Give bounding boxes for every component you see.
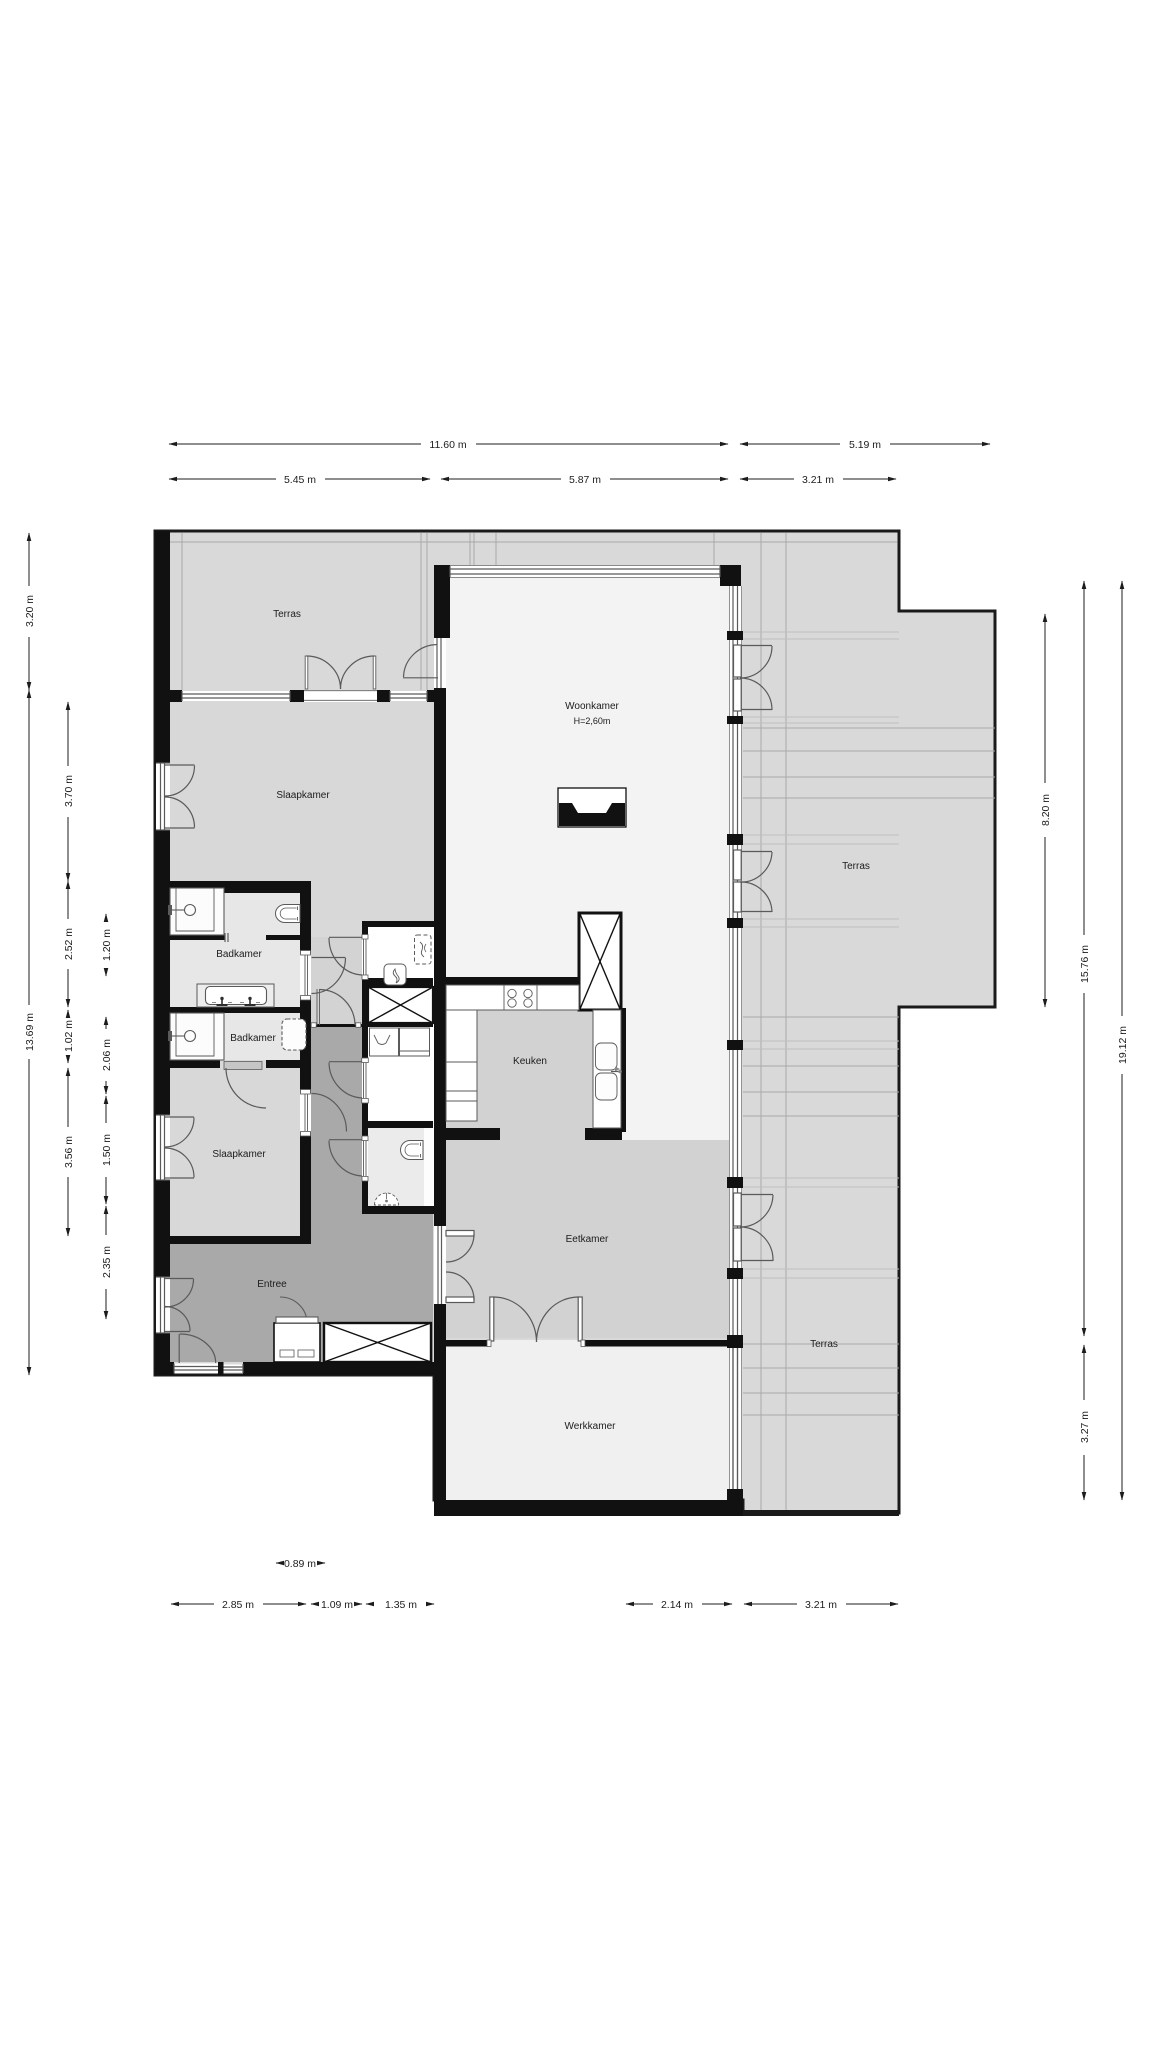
svg-text:3.20 m: 3.20 m <box>24 595 36 627</box>
svg-text:Badkamer: Badkamer <box>230 1033 276 1044</box>
svg-text:3.56 m: 3.56 m <box>63 1136 75 1168</box>
svg-text:1.50 m: 1.50 m <box>101 1134 113 1166</box>
svg-text:Slaapkamer: Slaapkamer <box>212 1149 266 1160</box>
svg-text:H=2,60m: H=2,60m <box>574 716 611 726</box>
svg-text:2.85 m: 2.85 m <box>222 1599 254 1611</box>
svg-text:19.12 m: 19.12 m <box>1117 1026 1129 1064</box>
svg-text:Woonkamer: Woonkamer <box>565 701 619 712</box>
svg-text:8.20 m: 8.20 m <box>1040 794 1052 826</box>
svg-text:Terras: Terras <box>842 861 870 872</box>
svg-text:3.21 m: 3.21 m <box>805 1599 837 1611</box>
svg-text:1.02 m: 1.02 m <box>63 1020 75 1052</box>
svg-text:Terras: Terras <box>273 609 301 620</box>
svg-text:2.52 m: 2.52 m <box>63 928 75 960</box>
svg-text:1.09 m: 1.09 m <box>321 1599 353 1611</box>
svg-text:5.45 m: 5.45 m <box>284 474 316 486</box>
svg-text:15.76 m: 15.76 m <box>1079 945 1091 983</box>
svg-text:5.87 m: 5.87 m <box>569 474 601 486</box>
svg-text:Terras: Terras <box>810 1339 838 1350</box>
svg-text:Slaapkamer: Slaapkamer <box>276 790 330 801</box>
svg-text:2.35 m: 2.35 m <box>101 1246 113 1278</box>
svg-text:1.20 m: 1.20 m <box>101 929 113 961</box>
svg-text:2.06 m: 2.06 m <box>101 1039 113 1071</box>
svg-text:Badkamer: Badkamer <box>216 949 262 960</box>
svg-text:Keuken: Keuken <box>513 1056 547 1067</box>
svg-text:Eetkamer: Eetkamer <box>566 1234 609 1245</box>
svg-text:Werkkamer: Werkkamer <box>565 1421 617 1432</box>
svg-text:11.60 m: 11.60 m <box>429 439 466 451</box>
svg-text:0.89 m: 0.89 m <box>284 1558 316 1570</box>
svg-text:13.69 m: 13.69 m <box>24 1013 36 1051</box>
svg-text:2.14 m: 2.14 m <box>661 1599 693 1611</box>
svg-text:3.27 m: 3.27 m <box>1079 1411 1091 1443</box>
svg-text:Entree: Entree <box>257 1279 287 1290</box>
svg-text:1.35 m: 1.35 m <box>385 1599 417 1611</box>
svg-text:3.21 m: 3.21 m <box>802 474 834 486</box>
svg-text:3.70 m: 3.70 m <box>63 775 75 807</box>
svg-text:5.19 m: 5.19 m <box>849 439 881 451</box>
